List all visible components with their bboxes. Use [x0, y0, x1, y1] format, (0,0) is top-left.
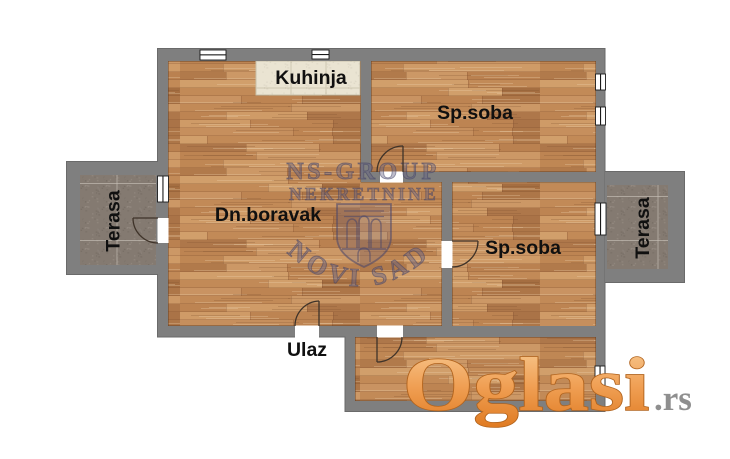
svg-text:NEKRETNINE: NEKRETNINE [289, 184, 439, 204]
svg-text:Oglasi: Oglasi [403, 344, 649, 428]
svg-text:Sp.soba: Sp.soba [437, 102, 513, 124]
svg-text:Ulaz: Ulaz [287, 339, 327, 361]
svg-text:Dn.boravak: Dn.boravak [215, 204, 321, 226]
svg-text:NS-GROUP: NS-GROUP [286, 159, 439, 185]
svg-text:Terasa: Terasa [632, 197, 654, 259]
svg-text:Sp.soba: Sp.soba [485, 237, 561, 259]
svg-text:Kuhinja: Kuhinja [275, 67, 347, 89]
svg-text:Terasa: Terasa [103, 190, 125, 252]
svg-text:.rs: .rs [654, 379, 692, 418]
